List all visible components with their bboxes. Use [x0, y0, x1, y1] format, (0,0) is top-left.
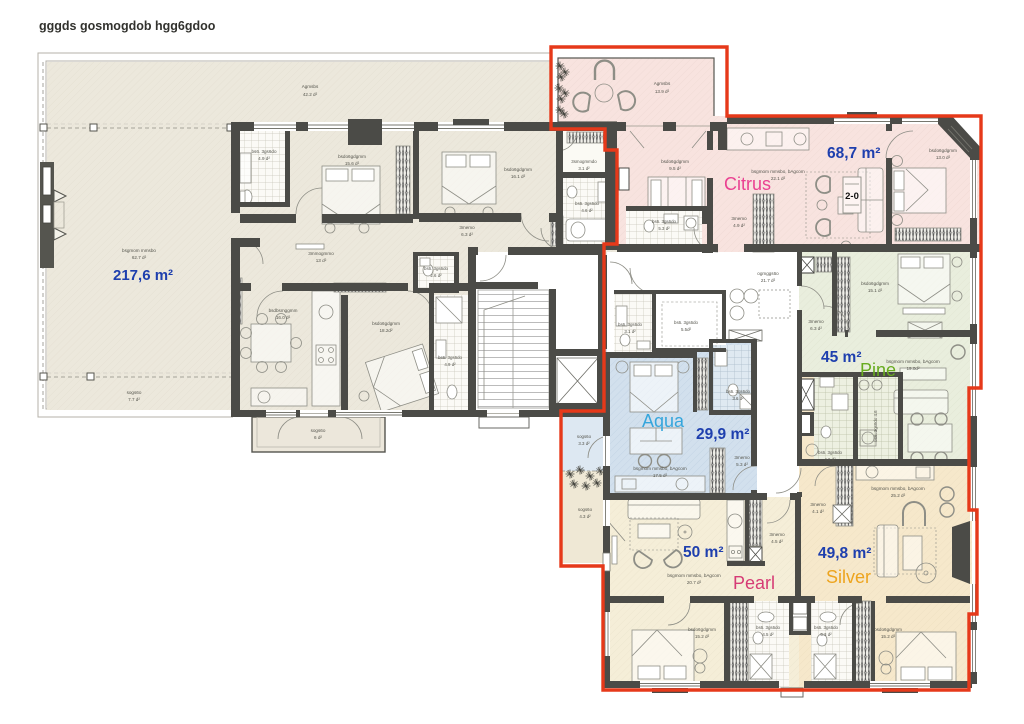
svg-text:3memo: 3memo — [810, 502, 826, 507]
svg-text:2-0: 2-0 — [845, 191, 859, 202]
svg-text:217,6 m²: 217,6 m² — [113, 267, 173, 284]
svg-text:3memo: 3memo — [459, 225, 475, 230]
svg-text:7.7 d²: 7.7 d² — [128, 397, 140, 402]
svg-text:6.3 d²: 6.3 d² — [461, 232, 473, 237]
svg-text:15.1 d²: 15.1 d² — [868, 288, 883, 293]
svg-text:sogs6o: sogs6o — [578, 507, 593, 512]
svg-text:42.2 d²: 42.2 d² — [303, 92, 318, 97]
svg-text:bsdo6gdgmm: bsdo6gdgmm — [661, 159, 689, 164]
svg-text:bs6. 3gs6do: bs6. 3gs6do — [575, 201, 599, 206]
svg-text:3memo: 3memo — [769, 532, 785, 537]
svg-text:5.3 d²: 5.3 d² — [736, 462, 748, 467]
svg-text:Silver: Silver — [826, 567, 871, 587]
svg-text:15.2 d²: 15.2 d² — [695, 634, 710, 639]
svg-text:19.0d²: 19.0d² — [906, 366, 919, 371]
svg-text:bs6. 3gs6do: bs6. 3gs6do — [814, 625, 838, 630]
svg-text:13 d²: 13 d² — [316, 258, 327, 263]
svg-text:22.1 d²: 22.1 d² — [771, 176, 786, 181]
svg-text:bsgmom mmsbo: bsgmom mmsbo — [122, 248, 156, 253]
svg-text:18.2d²: 18.2d² — [379, 328, 392, 333]
svg-text:bsdo6gdgmm: bsdo6gdgmm — [929, 148, 957, 153]
svg-text:21.7 d²: 21.7 d² — [761, 278, 776, 283]
svg-text:bs6. 3gs6do: bs6. 3gs6do — [674, 320, 698, 325]
svg-text:3.3 d²: 3.3 d² — [578, 441, 590, 446]
svg-text:bs6. 3gs6do 4.6: bs6. 3gs6do 4.6 — [873, 410, 878, 442]
svg-text:68,7 m²: 68,7 m² — [827, 145, 880, 162]
svg-text:3smogmmdo: 3smogmmdo — [571, 159, 597, 164]
svg-text:Agmsbs: Agmsbs — [302, 84, 319, 89]
svg-text:bs6. 3gs6do: bs6. 3gs6do — [726, 389, 750, 394]
svg-text:3mmogmmo: 3mmogmmo — [308, 251, 334, 256]
svg-text:45 m²: 45 m² — [821, 349, 862, 366]
svg-text:bs6. 3gs6do: bs6. 3gs6do — [756, 625, 780, 630]
svg-text:5.5d²: 5.5d² — [681, 327, 692, 332]
svg-text:Pearl: Pearl — [733, 573, 775, 593]
svg-text:gggds gosmogdob hgg6gdoo: gggds gosmogdob hgg6gdoo — [39, 19, 216, 33]
svg-text:4.5 d²: 4.5 d² — [771, 539, 783, 544]
svg-text:16.1 d²: 16.1 d² — [511, 174, 526, 179]
svg-text:3memo: 3memo — [734, 455, 750, 460]
svg-text:25.2 d²: 25.2 d² — [891, 493, 906, 498]
svg-text:16.0 d²: 16.0 d² — [276, 315, 291, 320]
svg-text:bsdo6gdgmm: bsdo6gdgmm — [861, 281, 889, 286]
svg-text:sogs6o: sogs6o — [127, 390, 142, 395]
svg-text:ogmggs6o: ogmggs6o — [757, 271, 779, 276]
svg-text:bsdo6gdgmm: bsdo6gdgmm — [874, 627, 902, 632]
svg-text:bsgmom mmsbo, bAgcom: bsgmom mmsbo, bAgcom — [871, 486, 925, 491]
svg-text:Agmsbs: Agmsbs — [654, 81, 671, 86]
svg-text:3.1 d²: 3.1 d² — [578, 166, 590, 171]
svg-text:bs6. 3gs6do: bs6. 3gs6do — [618, 322, 642, 327]
svg-text:13.9 d²: 13.9 d² — [655, 89, 670, 94]
svg-text:bsdo6gdgmm: bsdo6gdgmm — [688, 627, 716, 632]
svg-text:bs6. 3gs6do: bs6. 3gs6do — [251, 149, 276, 154]
svg-text:sogs6o: sogs6o — [311, 428, 326, 433]
svg-text:17.5 d²: 17.5 d² — [653, 473, 668, 478]
svg-text:bsgmom mmsbo, bAgcom: bsgmom mmsbo, bAgcom — [751, 169, 805, 174]
svg-text:4.9 d²: 4.9 d² — [733, 223, 745, 228]
svg-text:bs6. 3gs6do: bs6. 3gs6do — [652, 219, 676, 224]
svg-text:4.6 d²: 4.6 d² — [581, 208, 593, 213]
svg-text:3memo: 3memo — [731, 216, 747, 221]
svg-text:15.2 d²: 15.2 d² — [881, 634, 896, 639]
svg-text:3.6 d²: 3.6 d² — [732, 396, 744, 401]
svg-text:bsdbsmggmm: bsdbsmggmm — [269, 308, 298, 313]
svg-text:49,8 m²: 49,8 m² — [818, 545, 871, 562]
svg-text:50 m²: 50 m² — [683, 544, 724, 561]
svg-text:4.6 d²: 4.6 d² — [824, 457, 836, 462]
svg-text:bsdo6gdgmm: bsdo6gdgmm — [372, 321, 400, 326]
svg-text:Aqua: Aqua — [642, 411, 685, 431]
svg-text:5.3 d²: 5.3 d² — [658, 226, 670, 231]
svg-text:15.6 d²: 15.6 d² — [345, 161, 360, 166]
svg-text:4.5 d²: 4.5 d² — [762, 632, 774, 637]
svg-text:6 d²: 6 d² — [314, 435, 322, 440]
svg-text:bs6. 3gs6do: bs6. 3gs6do — [424, 266, 448, 271]
svg-text:20.7 d²: 20.7 d² — [687, 580, 702, 585]
svg-text:4.3 d²: 4.3 d² — [579, 514, 591, 519]
svg-text:3memo: 3memo — [808, 319, 824, 324]
svg-text:4.9 d²: 4.9 d² — [258, 156, 270, 161]
svg-text:3.1 d²: 3.1 d² — [624, 329, 636, 334]
svg-text:Citrus: Citrus — [724, 174, 771, 194]
svg-text:bsgmom mmsbo, bAgcom: bsgmom mmsbo, bAgcom — [886, 359, 940, 364]
svg-text:bs6. 3gs6do: bs6. 3gs6do — [818, 450, 842, 455]
svg-text:13.0 d²: 13.0 d² — [936, 155, 951, 160]
svg-text:bsdo6gdgmm: bsdo6gdgmm — [338, 154, 366, 159]
svg-text:5.3 d²: 5.3 d² — [820, 632, 832, 637]
svg-text:4.9 d²: 4.9 d² — [444, 362, 456, 367]
svg-text:bsgmom mmsbo, bAgcom: bsgmom mmsbo, bAgcom — [633, 466, 687, 471]
svg-text:6.3 d²: 6.3 d² — [810, 326, 822, 331]
svg-text:9.5 d²: 9.5 d² — [669, 166, 681, 171]
svg-text:bsdo6gdgmm: bsdo6gdgmm — [504, 167, 532, 172]
svg-text:bs6. 3gs6do: bs6. 3gs6do — [438, 355, 462, 360]
svg-text:62.7 d²: 62.7 d² — [132, 255, 147, 260]
svg-text:4.1 d²: 4.1 d² — [812, 509, 824, 514]
svg-text:2.6 d²: 2.6 d² — [430, 273, 442, 278]
svg-text:29,9 m²: 29,9 m² — [696, 426, 749, 443]
svg-text:bsgmom mmsbo, bAgcom: bsgmom mmsbo, bAgcom — [667, 573, 721, 578]
svg-text:sogs6o: sogs6o — [577, 434, 592, 439]
